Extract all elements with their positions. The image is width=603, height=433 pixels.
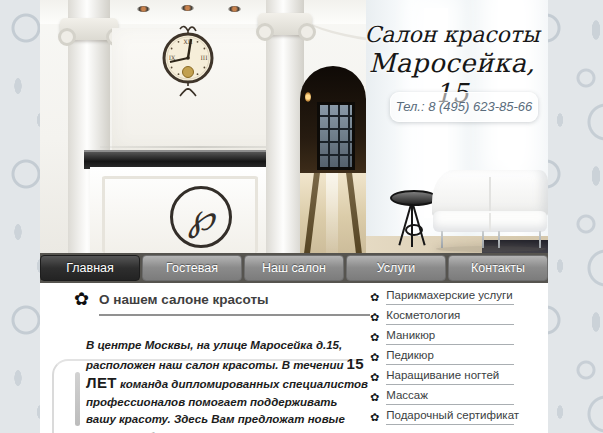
- service-link-manicure[interactable]: ✿ Маникюр: [370, 327, 548, 347]
- nav-item-salon[interactable]: Наш салон: [244, 255, 344, 281]
- flower-bullet-icon: ✿: [370, 331, 379, 343]
- spotlight-icon: [228, 6, 241, 12]
- sofa-leg: [482, 231, 484, 248]
- sofa-leg: [539, 231, 541, 248]
- services-section: ✿ Парикмахерские услуги ✿ Косметология ✿…: [370, 287, 548, 427]
- wall-clock: XII III VI IX: [158, 22, 218, 102]
- wall-sconce-icon: [305, 92, 311, 102]
- main-navigation: Главная Гостевая Наш салон Услуги Контак…: [40, 253, 548, 283]
- flower-bullet-icon: ✿: [370, 311, 379, 323]
- volute-icon: [256, 23, 274, 41]
- sofa-leg: [441, 231, 443, 248]
- svg-text:III: III: [200, 54, 208, 61]
- about-text-before: В центре Москвы, на улице Маросейка д.15…: [86, 339, 344, 371]
- content-area: ✿ О нашем салоне красоты В центре Москвы…: [40, 283, 548, 433]
- service-link-hairdressing[interactable]: ✿ Парикмахерские услуги: [370, 287, 548, 307]
- service-label[interactable]: Педикюр: [386, 349, 514, 365]
- floor-reflection: [326, 173, 338, 253]
- nav-item-contacts[interactable]: Контакты: [448, 255, 548, 281]
- salon-photo-header: XII III VI IX ℘: [40, 0, 548, 253]
- marble-floor: [300, 173, 366, 253]
- nav-item-services[interactable]: Услуги: [346, 255, 446, 281]
- flower-bullet-icon: ✿: [74, 289, 89, 309]
- spotlight-icon: [181, 5, 194, 11]
- about-heading-row: ✿ О нашем салоне красоты: [74, 289, 370, 316]
- table-top: [390, 190, 438, 206]
- flower-bullet-icon: ✿: [370, 391, 379, 403]
- volute-icon: [58, 28, 76, 46]
- flower-bullet-icon: ✿: [370, 411, 379, 423]
- nav-item-guestbook[interactable]: Гостевая: [142, 255, 242, 281]
- phone-number: Тел.: 8 (495) 623-85-66: [390, 92, 538, 122]
- sofa-seam: [489, 177, 491, 215]
- floor-border: [304, 173, 320, 253]
- service-link-pedicure[interactable]: ✿ Педикюр: [370, 347, 548, 367]
- side-table: [390, 190, 434, 250]
- service-label[interactable]: Косметология: [386, 309, 514, 325]
- page-container: XII III VI IX ℘: [40, 0, 548, 433]
- table-ring: [405, 224, 423, 236]
- service-link-cosmetology[interactable]: ✿ Косметология: [370, 307, 548, 327]
- service-label[interactable]: Маникюр: [386, 329, 514, 345]
- monogram-emblem: ℘: [170, 186, 232, 248]
- about-text: В центре Москвы, на улице Маросейка д.15…: [86, 337, 368, 433]
- nav-item-home[interactable]: Главная: [40, 255, 140, 281]
- about-section: ✿ О нашем салоне красоты В центре Москвы…: [74, 289, 370, 433]
- hallway-window: [317, 102, 355, 170]
- service-link-massage[interactable]: ✿ Массаж: [370, 387, 548, 407]
- floor-border: [346, 173, 362, 253]
- service-label[interactable]: Массаж: [386, 389, 514, 405]
- about-text-after: команда дипломированных специалистов про…: [86, 378, 368, 433]
- service-link-gift-certificate[interactable]: ✿ Подарочный сертификат: [370, 407, 548, 427]
- site-title-line1: Салон красоты: [356, 22, 548, 47]
- service-label[interactable]: Подарочный сертификат: [386, 409, 514, 425]
- white-sofa: [432, 170, 548, 252]
- about-heading: О нашем салоне красоты: [99, 289, 370, 316]
- volute-icon: [298, 23, 316, 41]
- flower-bullet-icon: ✿: [370, 371, 379, 383]
- service-link-nail-extension[interactable]: ✿ Наращивание ногтей: [370, 367, 548, 387]
- sofa-leg: [498, 231, 500, 248]
- sofa-shadow: [436, 246, 546, 252]
- monogram-letter: ℘: [188, 198, 215, 236]
- sofa-seam: [489, 213, 491, 231]
- service-label[interactable]: Наращивание ногтей: [386, 369, 514, 385]
- service-label[interactable]: Парикмахерские услуги: [386, 289, 514, 305]
- spotlight-icon: [137, 6, 150, 12]
- flower-bullet-icon: ✿: [370, 351, 379, 363]
- flower-bullet-icon: ✿: [370, 291, 379, 303]
- services-list: ✿ Парикмахерские услуги ✿ Косметология ✿…: [370, 287, 548, 427]
